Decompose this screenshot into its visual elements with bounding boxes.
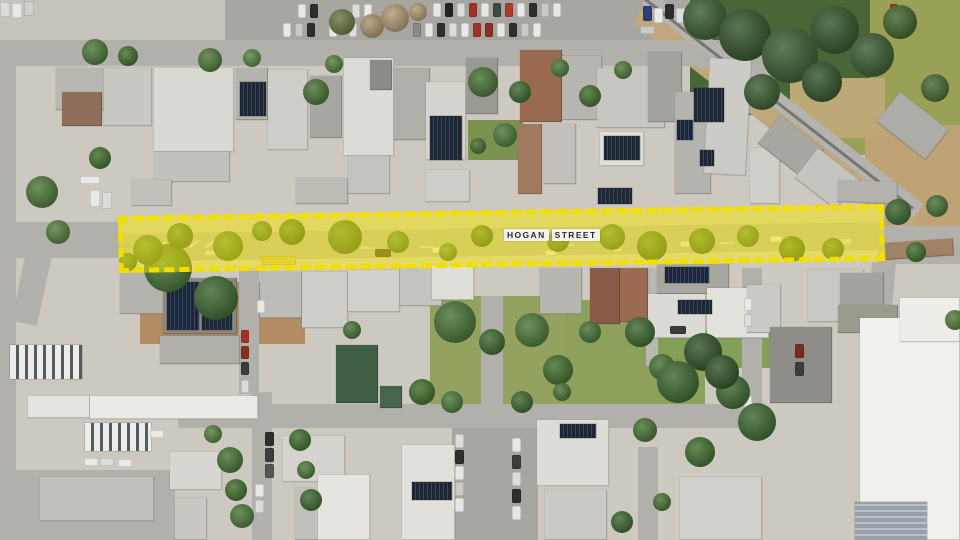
tree xyxy=(434,301,476,343)
vehicle xyxy=(84,458,98,466)
tree xyxy=(850,33,894,77)
vehicle xyxy=(265,432,274,446)
solar-panel-array xyxy=(665,267,709,283)
tree xyxy=(921,74,949,102)
building xyxy=(40,477,154,521)
building xyxy=(432,266,474,300)
building xyxy=(348,156,390,194)
tree xyxy=(802,62,842,102)
vehicle xyxy=(241,362,249,375)
vehicle xyxy=(512,455,521,469)
vehicle xyxy=(283,23,291,37)
building xyxy=(318,475,370,540)
tree xyxy=(653,493,671,511)
vehicle xyxy=(473,23,481,37)
tree xyxy=(297,461,315,479)
vehicle xyxy=(425,23,433,37)
solar-panel-array xyxy=(678,300,712,314)
building xyxy=(545,490,607,540)
tree xyxy=(551,59,569,77)
vehicle xyxy=(455,498,464,512)
tree xyxy=(493,123,517,147)
vehicle xyxy=(455,466,464,480)
tree xyxy=(470,138,486,154)
road xyxy=(638,447,658,540)
solar-panel-array xyxy=(694,88,724,122)
solar-panel-array xyxy=(412,482,452,500)
tree xyxy=(625,317,655,347)
vehicle xyxy=(433,3,441,17)
tree xyxy=(82,39,108,65)
roof-grid xyxy=(855,502,927,540)
building xyxy=(154,68,234,152)
building xyxy=(90,396,258,419)
tree xyxy=(705,355,739,389)
tree xyxy=(468,67,498,97)
tree xyxy=(230,504,254,528)
solar-panel-array xyxy=(700,150,714,166)
tree xyxy=(906,242,926,262)
vehicle xyxy=(307,23,315,37)
ground-patch xyxy=(0,0,230,42)
vehicle xyxy=(455,434,464,448)
tree xyxy=(579,85,601,107)
tree xyxy=(217,447,243,473)
vehicle xyxy=(265,464,274,478)
tree xyxy=(225,479,247,501)
tree xyxy=(685,437,715,467)
tree xyxy=(289,429,311,451)
building xyxy=(302,272,348,328)
building xyxy=(590,268,620,324)
tree xyxy=(303,79,329,105)
building xyxy=(62,92,102,126)
building xyxy=(348,270,400,312)
vehicle xyxy=(670,326,686,334)
vehicle xyxy=(413,23,421,37)
vehicle xyxy=(150,430,164,438)
vehicle xyxy=(654,8,663,23)
tree xyxy=(479,329,505,355)
vehicle xyxy=(795,344,804,358)
tree xyxy=(46,220,70,244)
tree xyxy=(243,49,261,67)
vehicle xyxy=(643,6,652,21)
tree xyxy=(441,391,463,413)
vehicle xyxy=(310,4,318,18)
vehicle xyxy=(12,3,22,18)
vehicle xyxy=(509,23,517,37)
vehicle xyxy=(481,3,489,17)
vehicle xyxy=(665,4,674,19)
tree xyxy=(300,489,322,511)
vehicle xyxy=(90,190,100,207)
tree xyxy=(194,276,238,320)
vehicle xyxy=(505,3,513,17)
building xyxy=(370,60,392,90)
tree xyxy=(511,391,533,413)
tree xyxy=(611,511,633,533)
building xyxy=(426,170,470,202)
vehicle xyxy=(437,23,445,37)
vehicle xyxy=(241,330,249,343)
vehicle xyxy=(102,192,112,209)
vehicle xyxy=(744,314,752,327)
vehicle xyxy=(445,3,453,17)
vehicle xyxy=(255,500,264,513)
solar-panel-array xyxy=(430,116,462,160)
building xyxy=(170,452,222,490)
tree xyxy=(509,81,531,103)
vehicle xyxy=(298,4,306,18)
building xyxy=(837,180,898,204)
tree xyxy=(198,48,222,72)
tree xyxy=(325,55,343,73)
tree xyxy=(657,361,699,403)
striped-roof xyxy=(85,423,151,451)
road xyxy=(11,252,51,326)
building xyxy=(394,68,430,140)
building xyxy=(336,345,378,403)
vehicle xyxy=(512,438,521,452)
vehicle xyxy=(449,23,457,37)
building xyxy=(154,152,230,182)
building xyxy=(175,498,207,540)
building xyxy=(540,268,582,314)
vehicle xyxy=(469,3,477,17)
vehicle xyxy=(744,298,752,311)
building xyxy=(380,386,402,408)
vehicle xyxy=(529,3,537,17)
road xyxy=(452,428,538,540)
vehicle xyxy=(461,23,469,37)
vehicle xyxy=(24,1,34,16)
building xyxy=(296,178,348,204)
building xyxy=(260,272,302,318)
vehicle xyxy=(485,23,493,37)
street-label-word-2: STREET xyxy=(552,229,600,241)
vehicle xyxy=(553,3,561,17)
solar-panel-array xyxy=(240,82,266,116)
highlight-band xyxy=(118,204,885,273)
vehicle xyxy=(640,26,655,34)
street-label-word-1: HOGAN xyxy=(504,229,549,241)
vehicle xyxy=(80,176,100,184)
tree xyxy=(329,9,355,35)
tree xyxy=(744,74,780,110)
vehicle xyxy=(118,459,132,467)
vehicle xyxy=(457,3,465,17)
tree xyxy=(738,403,776,441)
building xyxy=(104,68,152,126)
tree xyxy=(89,147,111,169)
tree xyxy=(409,3,427,21)
vehicle xyxy=(241,380,249,393)
tree xyxy=(118,46,138,66)
vehicle xyxy=(517,3,525,17)
building xyxy=(518,124,542,194)
vehicle xyxy=(255,484,264,497)
vehicle xyxy=(497,23,505,37)
vehicle xyxy=(455,450,464,464)
building xyxy=(268,70,308,150)
road xyxy=(178,404,763,428)
tree xyxy=(26,176,58,208)
solar-panel-array xyxy=(598,188,632,204)
tree xyxy=(204,425,222,443)
vehicle xyxy=(493,3,501,17)
vehicle xyxy=(257,300,265,313)
tree xyxy=(926,195,948,217)
solar-panel-array xyxy=(560,424,596,438)
building xyxy=(747,285,781,333)
tree xyxy=(945,310,960,330)
aerial-map: HOGAN STREET xyxy=(0,0,960,540)
vehicle xyxy=(265,448,274,462)
vehicle xyxy=(541,3,549,17)
tree xyxy=(885,199,911,225)
tree xyxy=(343,321,361,339)
tree xyxy=(515,313,549,347)
tree xyxy=(543,355,573,385)
tree xyxy=(553,383,571,401)
building xyxy=(132,180,172,206)
solar-panel-array xyxy=(677,120,693,140)
building xyxy=(160,336,240,364)
vehicle xyxy=(241,346,249,359)
building xyxy=(28,396,90,418)
street-label: HOGAN STREET xyxy=(504,229,600,241)
solar-panel-array xyxy=(604,136,640,160)
tree xyxy=(579,321,601,343)
building xyxy=(620,268,648,322)
vehicle xyxy=(0,2,10,17)
building xyxy=(544,124,576,184)
vehicle xyxy=(455,482,464,496)
striped-roof xyxy=(10,345,82,379)
tree xyxy=(633,418,657,442)
tree xyxy=(614,61,632,79)
vehicle xyxy=(533,23,541,37)
vehicle xyxy=(100,458,114,466)
tree xyxy=(381,4,409,32)
vehicle xyxy=(295,23,303,37)
vehicle xyxy=(512,489,521,503)
vehicle xyxy=(521,23,529,37)
vehicle xyxy=(512,506,521,520)
building xyxy=(680,477,762,540)
tree xyxy=(409,379,435,405)
vehicle xyxy=(795,362,804,376)
tree xyxy=(883,5,917,39)
vehicle xyxy=(512,472,521,486)
road xyxy=(0,64,16,540)
